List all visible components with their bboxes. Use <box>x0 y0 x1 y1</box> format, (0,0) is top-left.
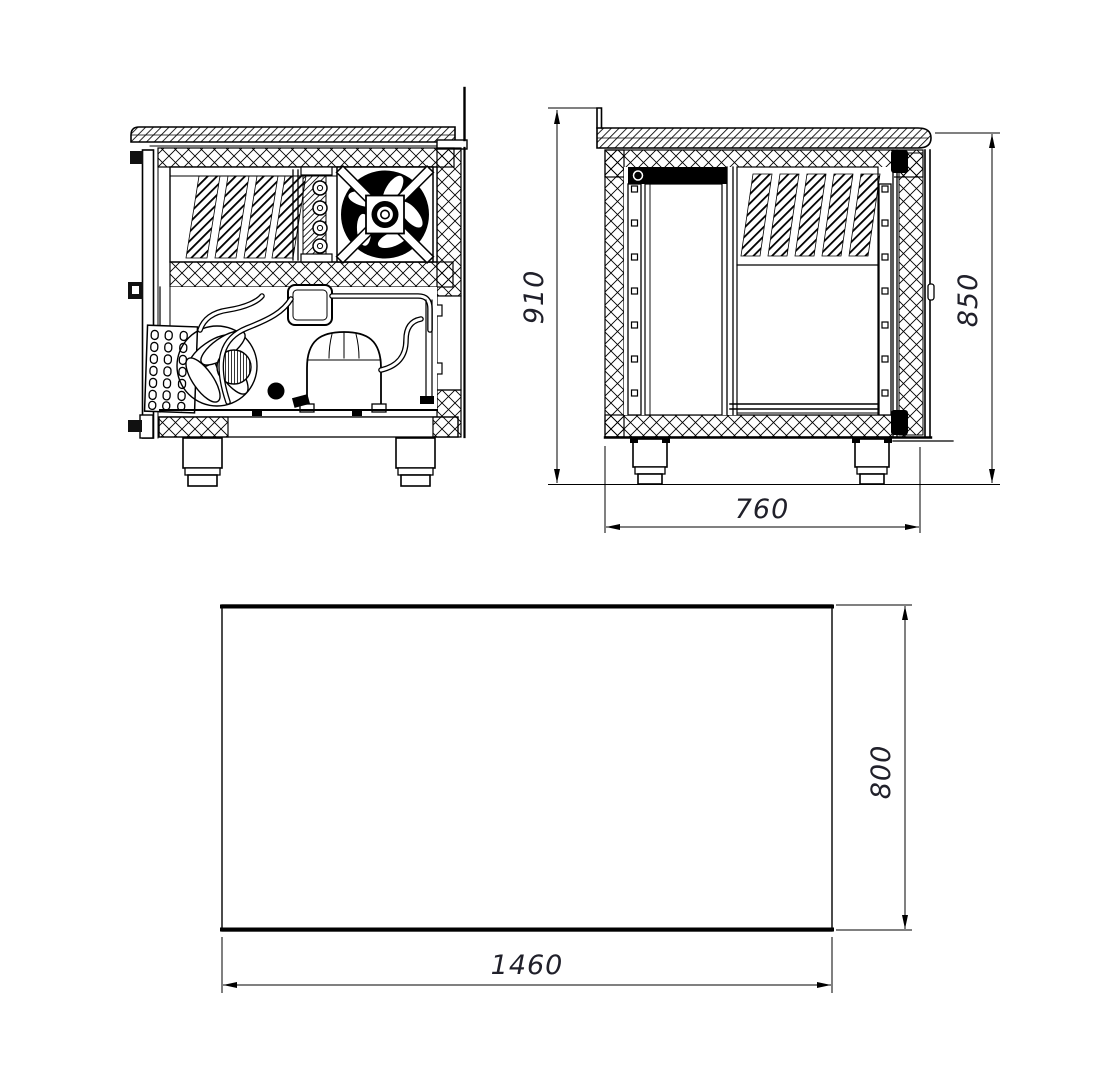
dimension-1460: 1460 <box>222 937 832 993</box>
front-legs <box>183 438 435 486</box>
front-right-column <box>434 148 465 437</box>
front-worktop <box>131 88 467 149</box>
dim-label-760: 760 <box>735 494 790 525</box>
insulation-bottom <box>605 415 905 437</box>
side-door <box>891 150 953 441</box>
vent-louvers-icon <box>741 174 880 256</box>
drawing-svg: 910 850 760 800 1460 <box>0 0 1113 1085</box>
dim-label-800: 800 <box>866 745 897 800</box>
hinge-icon <box>130 151 143 164</box>
compressor-icon <box>300 332 386 412</box>
leg <box>396 438 435 486</box>
front-upper-compartment <box>170 166 437 263</box>
leg <box>852 438 892 484</box>
side-worktop <box>597 108 931 148</box>
front-bottom-band <box>159 417 458 437</box>
junction-box-icon <box>288 285 332 325</box>
door-handle <box>928 284 934 300</box>
dim-label-910: 910 <box>519 270 550 325</box>
insulation-left <box>605 150 624 437</box>
lamp-icon <box>634 171 643 180</box>
side-view <box>597 108 953 484</box>
fan-impeller-icon <box>177 325 257 407</box>
front-machinery-compartment <box>145 285 437 417</box>
dimension-850: 850 <box>935 133 1000 483</box>
insulation-band-top <box>158 148 454 167</box>
interior-panel-right <box>730 167 880 415</box>
fan-icon <box>337 166 434 263</box>
technical-drawing-canvas: 910 850 760 800 1460 <box>0 0 1113 1085</box>
plan-view <box>220 605 834 931</box>
dim-label-1460: 1460 <box>491 950 564 981</box>
side-interior <box>624 167 894 415</box>
side-legs <box>630 438 892 484</box>
shelf-rail-right <box>879 184 891 415</box>
dim-label-850: 850 <box>953 273 984 328</box>
front-view <box>128 88 467 486</box>
interior-panel-left <box>645 184 722 415</box>
dimension-910: 910 <box>519 108 597 483</box>
hinge-icon <box>891 410 908 435</box>
insulation-band-middle <box>170 262 453 287</box>
dimension-800: 800 <box>836 605 912 930</box>
leg <box>183 438 222 486</box>
hinge-icon <box>891 150 908 173</box>
leg <box>630 438 670 484</box>
